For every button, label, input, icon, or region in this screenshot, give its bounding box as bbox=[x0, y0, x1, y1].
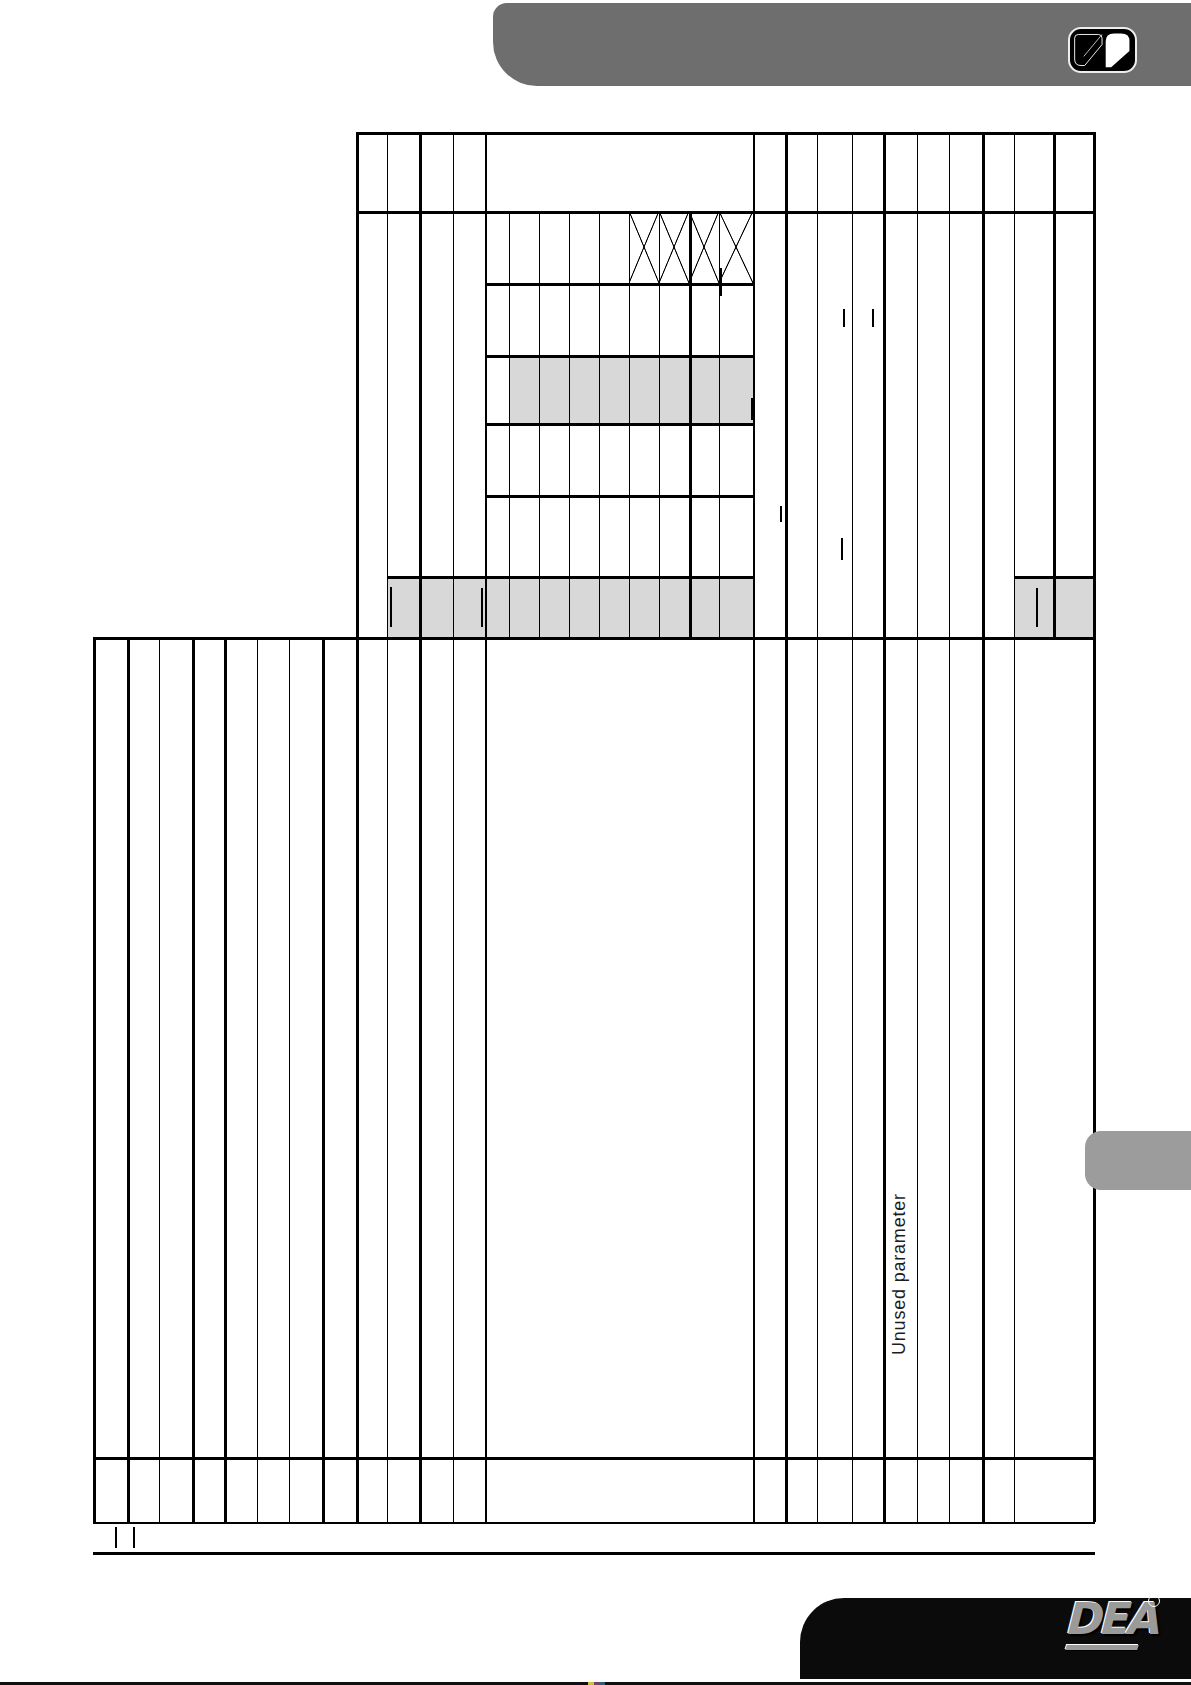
crossed-cell bbox=[629, 211, 659, 283]
grid-line-v bbox=[485, 132, 487, 1522]
shaded-band bbox=[509, 356, 753, 423]
grid-line-v bbox=[852, 132, 853, 1522]
tick-mark bbox=[751, 398, 753, 420]
grid-line-v bbox=[93, 637, 96, 1522]
tick-mark bbox=[841, 538, 843, 560]
grid-line-v bbox=[159, 637, 160, 1522]
tick-mark bbox=[720, 268, 722, 296]
grid-line-h bbox=[387, 576, 755, 579]
grid-line-h bbox=[93, 1522, 1095, 1524]
tick-mark bbox=[843, 309, 845, 327]
tick-mark bbox=[872, 309, 874, 327]
grid-line-h bbox=[93, 1457, 1095, 1460]
grid-line-h bbox=[356, 211, 1095, 214]
grid-line-h bbox=[485, 423, 755, 426]
tick-mark bbox=[780, 506, 782, 522]
grid-line-v bbox=[453, 132, 454, 1522]
dea-logo-underline bbox=[1065, 1645, 1139, 1650]
dea-logo-text: DEA bbox=[1064, 1593, 1156, 1644]
grid-line-v bbox=[356, 132, 359, 1522]
rotated-cell-label: Unused parameter bbox=[887, 1155, 911, 1355]
tick-mark bbox=[481, 588, 483, 627]
grid-line-h bbox=[1014, 576, 1095, 579]
grid-line-h bbox=[93, 1552, 1095, 1555]
grid-line-h bbox=[93, 637, 1095, 640]
document-page: Unused parameter DEA ° bbox=[0, 0, 1191, 1685]
tick-mark bbox=[133, 1527, 135, 1548]
side-index-tab bbox=[1085, 1131, 1191, 1190]
grid-line-v bbox=[127, 637, 130, 1522]
crossed-cell bbox=[689, 211, 719, 283]
grid-line-v bbox=[419, 132, 422, 1522]
tick-mark bbox=[1036, 588, 1038, 627]
grid-line-v bbox=[322, 637, 325, 1522]
grid-line-h bbox=[485, 355, 755, 358]
grid-line-v bbox=[192, 637, 195, 1522]
grid-line-v bbox=[257, 637, 258, 1522]
grid-line-v bbox=[289, 637, 290, 1522]
grid-line-v bbox=[1053, 132, 1056, 637]
dea-logo-degree-mark: ° bbox=[1148, 1595, 1160, 1607]
grid-line-v bbox=[1093, 132, 1096, 1522]
grid-line-v bbox=[785, 132, 788, 1522]
grid-line-h bbox=[485, 495, 755, 498]
grid-line-v bbox=[949, 132, 950, 1522]
grid-line-v bbox=[387, 132, 388, 1522]
grid-line-v bbox=[1014, 132, 1015, 1522]
open-book-icon bbox=[1070, 29, 1135, 71]
grid-line-v bbox=[753, 132, 755, 1522]
grid-line-h bbox=[356, 132, 1095, 135]
crossed-cell bbox=[659, 211, 689, 283]
crossed-cell bbox=[719, 211, 753, 283]
grid-line-v bbox=[224, 637, 227, 1522]
grid-line-v bbox=[982, 132, 985, 1522]
grid-line-h bbox=[485, 283, 755, 286]
tick-mark bbox=[115, 1527, 117, 1548]
grid-line-v bbox=[817, 132, 818, 1522]
tick-mark bbox=[390, 587, 392, 627]
grid-line-v bbox=[883, 132, 886, 1522]
dea-logo: DEA ° bbox=[1062, 1597, 1162, 1663]
logo-badge bbox=[1068, 27, 1137, 73]
grid-line-v bbox=[917, 132, 918, 1522]
